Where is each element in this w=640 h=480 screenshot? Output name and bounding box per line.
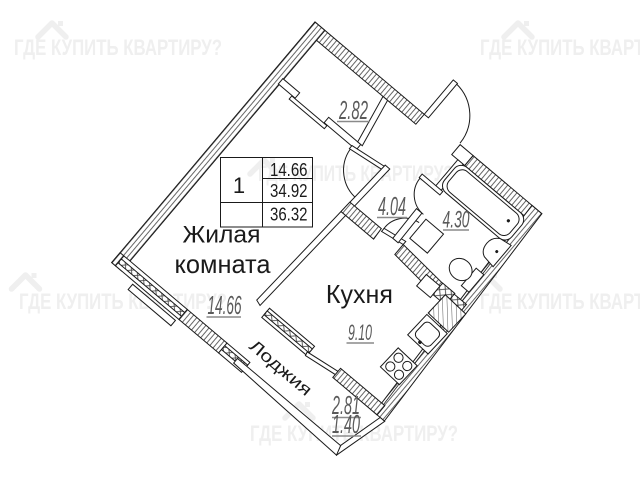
svg-text:Жилая: Жилая	[183, 221, 261, 248]
svg-text:комната: комната	[175, 249, 272, 279]
svg-text:Кухня: Кухня	[326, 279, 393, 309]
svg-text:14.66: 14.66	[208, 290, 242, 320]
svg-text:9.10: 9.10	[348, 320, 372, 345]
svg-text:14.66: 14.66	[270, 160, 308, 180]
svg-text:2.82: 2.82	[338, 95, 368, 125]
svg-text:1: 1	[233, 173, 245, 198]
svg-text:ГДЕ КУПИТЬ КВАРТИРУ?: ГДЕ КУПИТЬ КВАРТИРУ?	[480, 289, 640, 314]
svg-text:1.40: 1.40	[332, 409, 360, 439]
svg-text:34.92: 34.92	[270, 181, 308, 201]
svg-text:ГДЕ КУПИТЬ КВАРТИРУ?: ГДЕ КУПИТЬ КВАРТИРУ?	[14, 35, 222, 60]
svg-text:4.04: 4.04	[378, 191, 406, 221]
svg-text:36.32: 36.32	[270, 205, 308, 225]
svg-text:ГДЕ КУПИТЬ КВАРТИРУ?: ГДЕ КУПИТЬ КВАРТИРУ?	[480, 35, 640, 60]
svg-text:ГДЕ КУПИТЬ КВАРТИРУ?: ГДЕ КУПИТЬ КВАРТИРУ?	[19, 289, 227, 314]
